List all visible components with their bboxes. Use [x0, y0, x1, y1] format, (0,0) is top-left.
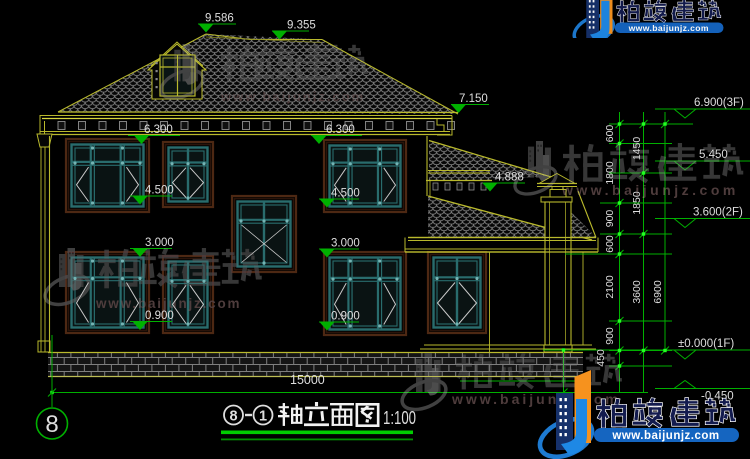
svg-text:8: 8 [45, 411, 58, 438]
svg-text:www.baijunjz.com: www.baijunjz.com [561, 182, 739, 198]
svg-text:3.000: 3.000 [331, 238, 360, 250]
svg-text:0.900: 0.900 [331, 311, 360, 323]
svg-text:www.baijunjz.com: www.baijunjz.com [451, 391, 621, 407]
svg-text:www.baijunjz.com: www.baijunjz.com [220, 89, 365, 104]
svg-text:0.900: 0.900 [145, 310, 174, 322]
svg-text:3.000: 3.000 [145, 237, 174, 249]
svg-text:1:100: 1:100 [383, 408, 416, 428]
svg-text:600: 600 [604, 125, 616, 143]
svg-text:6.900(3F): 6.900(3F) [694, 97, 744, 109]
svg-text:4.500: 4.500 [331, 188, 360, 200]
svg-text:600: 600 [604, 235, 616, 253]
svg-text:9.586: 9.586 [205, 13, 234, 25]
svg-text:3.600(2F): 3.600(2F) [693, 207, 743, 219]
svg-text:900: 900 [604, 327, 616, 345]
svg-text:4.500: 4.500 [145, 185, 174, 197]
svg-text:2100: 2100 [604, 275, 616, 299]
svg-text:www.baijunjz.com: www.baijunjz.com [611, 430, 719, 442]
svg-text:3600: 3600 [631, 280, 643, 304]
svg-text:6.300: 6.300 [144, 124, 173, 136]
svg-text:1: 1 [259, 409, 267, 425]
svg-text:9.355: 9.355 [287, 20, 316, 32]
svg-text:900: 900 [604, 210, 616, 228]
svg-text:8: 8 [229, 409, 237, 425]
svg-text:15000: 15000 [290, 373, 325, 387]
svg-text:±0.000(1F): ±0.000(1F) [678, 338, 734, 350]
svg-text:6.300: 6.300 [326, 124, 355, 136]
svg-text:6900: 6900 [652, 280, 664, 304]
svg-text:www.baijunjz.com: www.baijunjz.com [95, 296, 241, 311]
svg-text:7.150: 7.150 [459, 93, 488, 105]
